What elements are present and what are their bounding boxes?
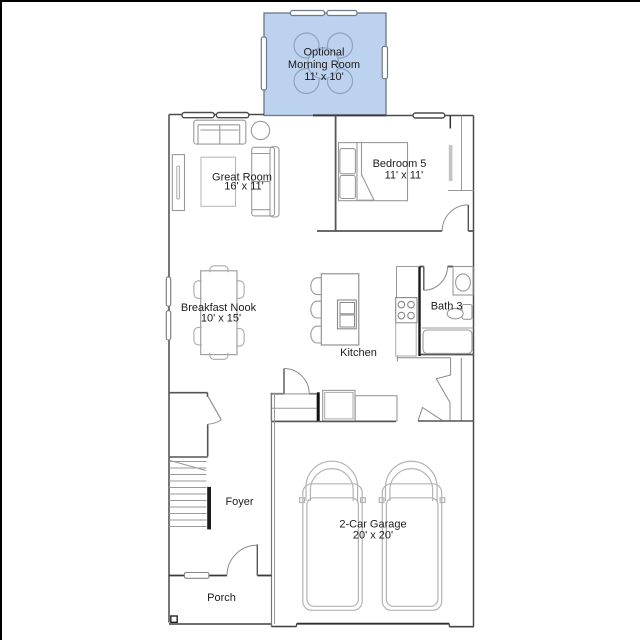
- svg-text:20' x 20': 20' x 20': [353, 530, 393, 542]
- svg-text:Optional: Optional: [304, 47, 345, 59]
- svg-text:Bath 3: Bath 3: [431, 301, 463, 313]
- svg-text:10' x 15': 10' x 15': [201, 313, 241, 325]
- svg-text:Kitchen: Kitchen: [340, 347, 377, 359]
- svg-text:Bedroom 5: Bedroom 5: [373, 158, 427, 170]
- svg-text:Foyer: Foyer: [225, 496, 253, 508]
- svg-text:16' x 11': 16' x 11': [224, 181, 263, 193]
- svg-text:Porch: Porch: [207, 592, 236, 604]
- svg-text:11' x 10': 11' x 10': [304, 71, 343, 83]
- svg-text:Morning Room: Morning Room: [288, 59, 360, 71]
- svg-text:11' x 11': 11' x 11': [385, 170, 424, 182]
